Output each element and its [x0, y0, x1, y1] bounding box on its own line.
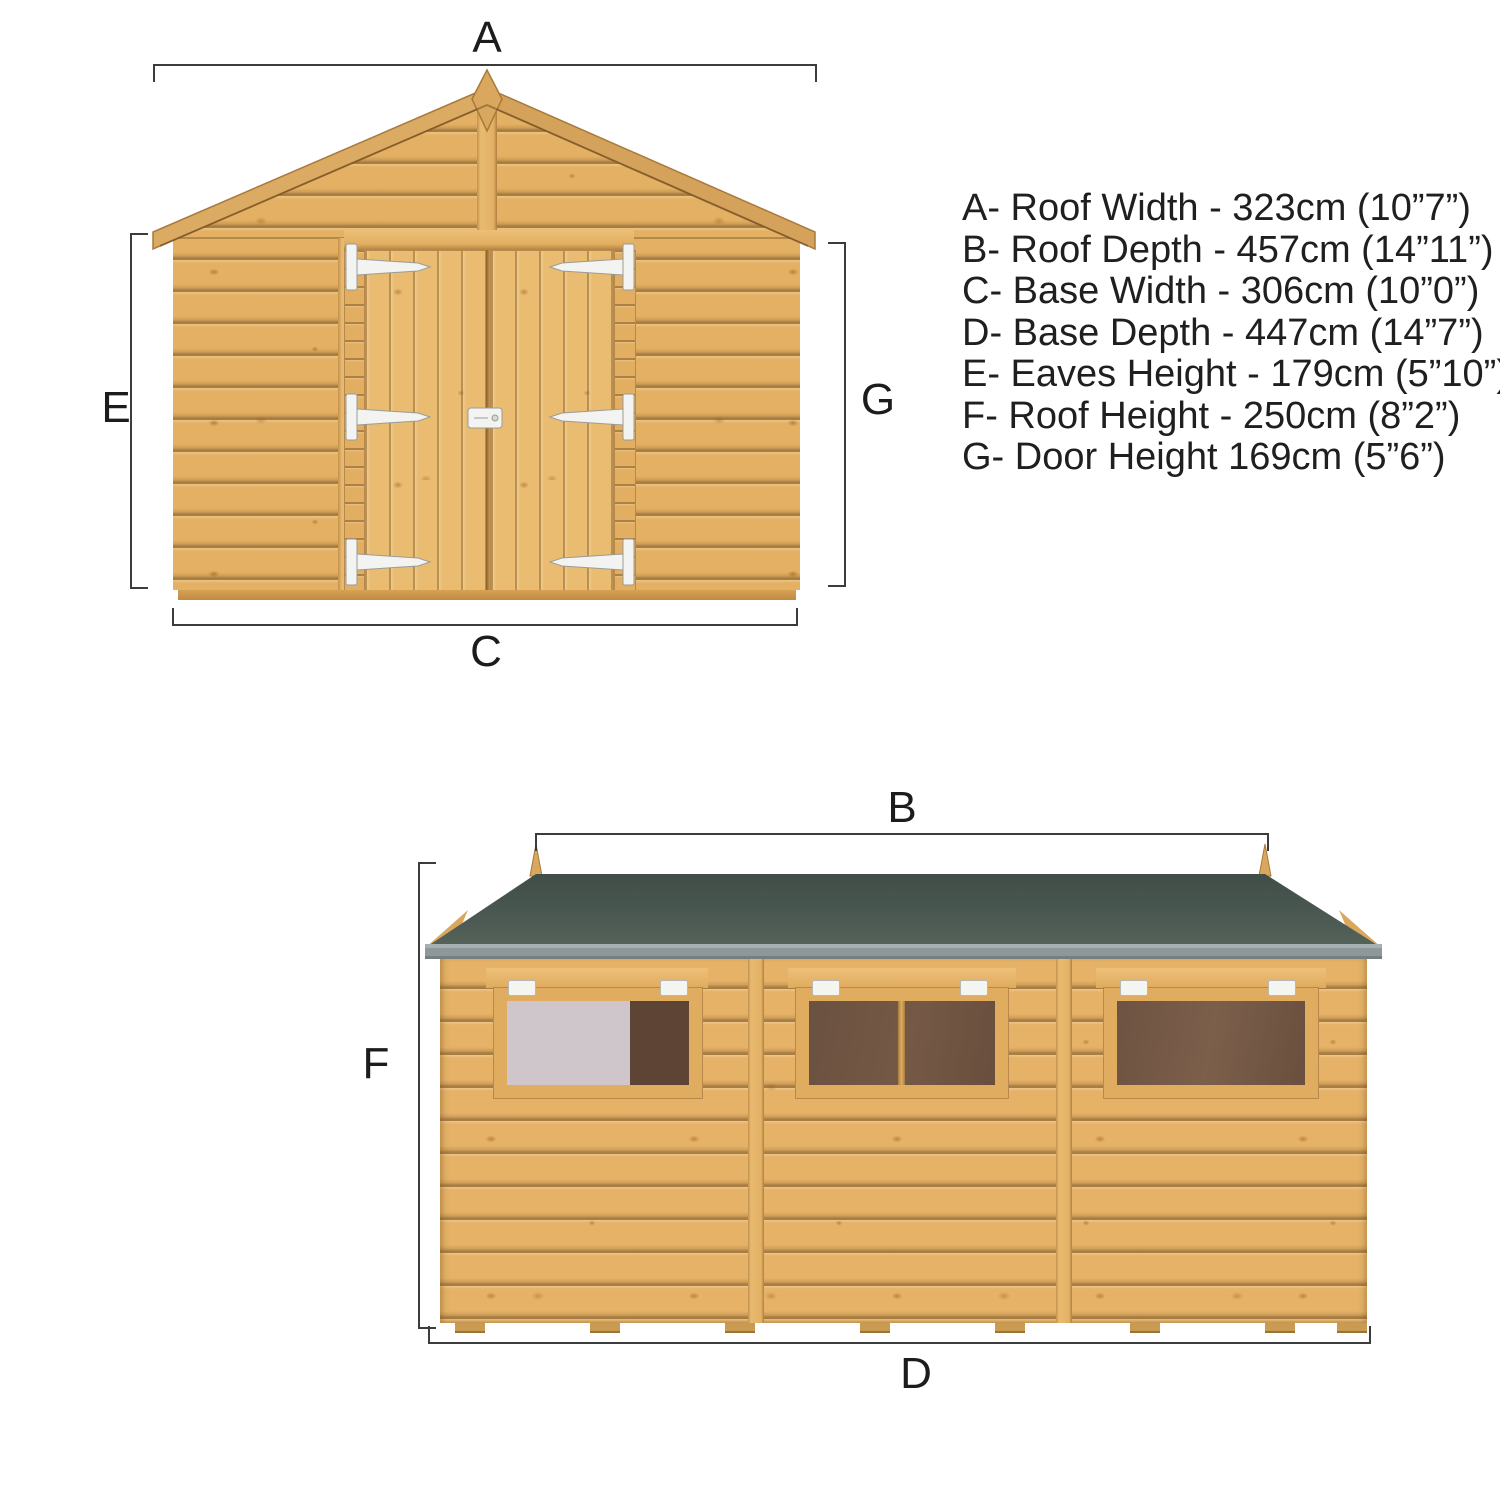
- hinge-strap: [550, 409, 623, 425]
- side-trim-1: [748, 956, 764, 1323]
- dim-line-base-width: [172, 608, 798, 626]
- window-clip: [960, 980, 988, 996]
- hinge-plate: [623, 539, 634, 585]
- dim-label-roof-depth: B: [874, 786, 930, 830]
- door-hardware: [330, 240, 650, 600]
- hinge-strap: [357, 554, 430, 570]
- window1-pane-light: [507, 1001, 630, 1085]
- dim-line-base-depth: [428, 1326, 1371, 1344]
- front-floor: [178, 590, 796, 600]
- dim-line-door-height: [828, 242, 846, 587]
- bargeboard-right: [487, 88, 815, 249]
- bargeboard-left: [153, 88, 487, 249]
- dim-line-roof-depth: [535, 833, 1269, 851]
- dim-line-roof-height: [418, 862, 436, 1329]
- dim-label-eaves-height: E: [94, 386, 138, 430]
- roof-felt-plane: [425, 874, 1382, 948]
- spec-roof-depth: B- Roof Depth - 457cm (14”11”): [962, 230, 1482, 272]
- hinge-strap: [357, 259, 430, 275]
- dim-label-base-width: C: [458, 630, 514, 674]
- window2-frame: [796, 988, 1008, 1098]
- dim-label-roof-width: A: [457, 16, 517, 60]
- window2-divider: [898, 1001, 905, 1085]
- front-elevation-view: A E G C: [0, 0, 900, 700]
- spec-eaves-height: E- Eaves Height - 179cm (5”10”): [962, 354, 1482, 396]
- dim-label-door-height: G: [854, 378, 902, 422]
- spec-roof-width: A- Roof Width - 323cm (10”7”): [962, 188, 1482, 230]
- window-clip: [508, 980, 536, 996]
- spec-base-depth: D- Base Depth - 447cm (14”7”): [962, 313, 1482, 355]
- hinge-strap: [550, 554, 623, 570]
- window3-pane-dark: [1117, 1001, 1305, 1085]
- side-elevation-view: B F D: [0, 760, 1500, 1500]
- hinge-strap: [357, 409, 430, 425]
- window1-frame: [494, 988, 702, 1098]
- dim-label-base-depth: D: [886, 1352, 946, 1396]
- spec-roof-height: F- Roof Height - 250cm (8”2”): [962, 396, 1482, 438]
- dimension-spec-list: A- Roof Width - 323cm (10”7”) B- Roof De…: [962, 188, 1482, 479]
- hinge-plate: [623, 394, 634, 440]
- hinge-plate: [346, 394, 357, 440]
- window-clip: [1268, 980, 1296, 996]
- spec-base-width: C- Base Width - 306cm (10”0”): [962, 271, 1482, 313]
- dim-label-roof-height: F: [352, 1042, 400, 1086]
- shed-dimension-diagram: A E G C A- Roof Width - 323cm (10”7”) B-…: [0, 0, 1500, 1500]
- front-roof: [100, 60, 840, 260]
- spec-door-height: G- Door Height 169cm (5”6”): [962, 437, 1482, 479]
- window-clip: [660, 980, 688, 996]
- window1-pane-dark: [630, 1001, 689, 1085]
- window3-frame: [1104, 988, 1318, 1098]
- window-clip: [812, 980, 840, 996]
- side-roof: [410, 840, 1400, 965]
- side-trim-2: [1056, 956, 1072, 1323]
- hinge-plate: [346, 539, 357, 585]
- dim-line-roof-width: [153, 64, 817, 82]
- window-clip: [1120, 980, 1148, 996]
- hinge-strap: [550, 259, 623, 275]
